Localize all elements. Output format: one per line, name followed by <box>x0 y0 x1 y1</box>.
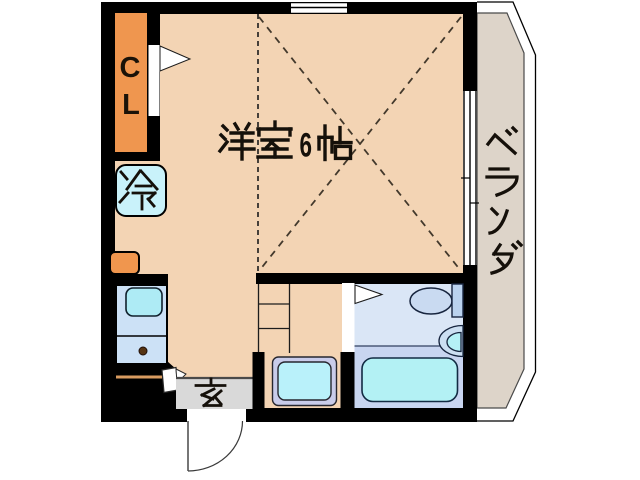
svg-text:C: C <box>120 52 141 84</box>
svg-text:6: 6 <box>300 127 312 165</box>
svg-text:L: L <box>122 89 140 121</box>
